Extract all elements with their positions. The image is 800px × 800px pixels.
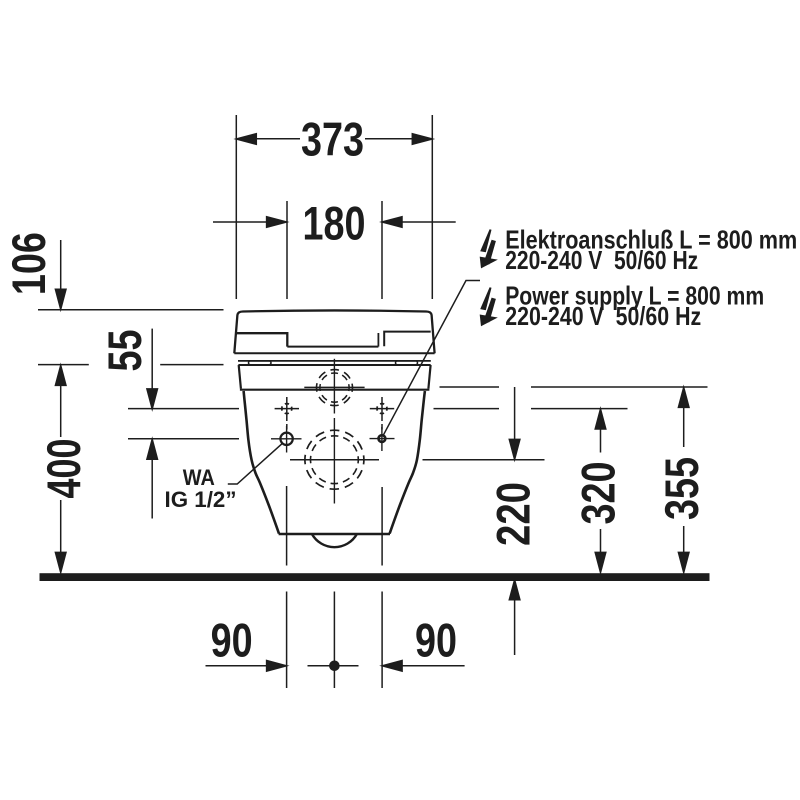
svg-text:90: 90	[415, 614, 457, 667]
svg-text:55: 55	[98, 330, 151, 372]
svg-text:106: 106	[2, 232, 55, 295]
svg-text:220: 220	[487, 482, 540, 546]
svg-text:220-240 V 50/60 Hz: 220-240 V 50/60 Hz	[505, 245, 698, 275]
svg-text:373: 373	[301, 112, 364, 165]
svg-text:320: 320	[572, 462, 625, 525]
svg-text:220-240 V 50/60 Hz: 220-240 V 50/60 Hz	[505, 301, 701, 331]
svg-text:180: 180	[303, 197, 366, 250]
svg-text:355: 355	[655, 457, 708, 520]
svg-text:IG 1/2”: IG 1/2”	[165, 487, 237, 512]
svg-text:90: 90	[211, 614, 253, 667]
svg-text:400: 400	[37, 439, 90, 499]
